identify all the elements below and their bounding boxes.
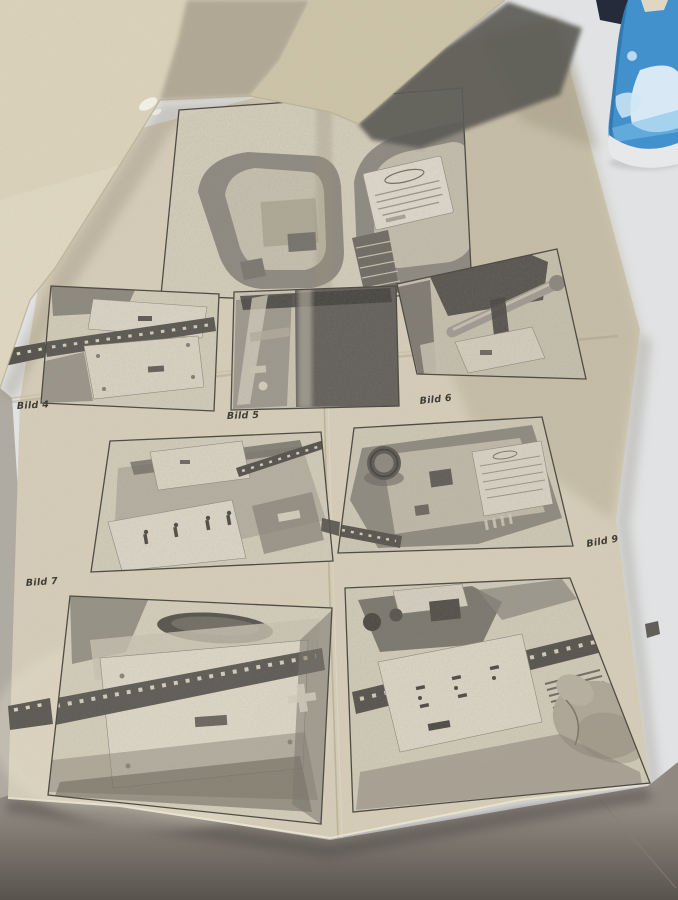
can-map-dot <box>627 51 637 61</box>
photo-of-instruction-leaflet: Bild 4 Bild 5 Bild 6 Bild 7 Bild 9 <box>0 0 678 900</box>
photo-scene: Bild 4 Bild 5 Bild 6 Bild 7 Bild 9 <box>0 0 678 900</box>
